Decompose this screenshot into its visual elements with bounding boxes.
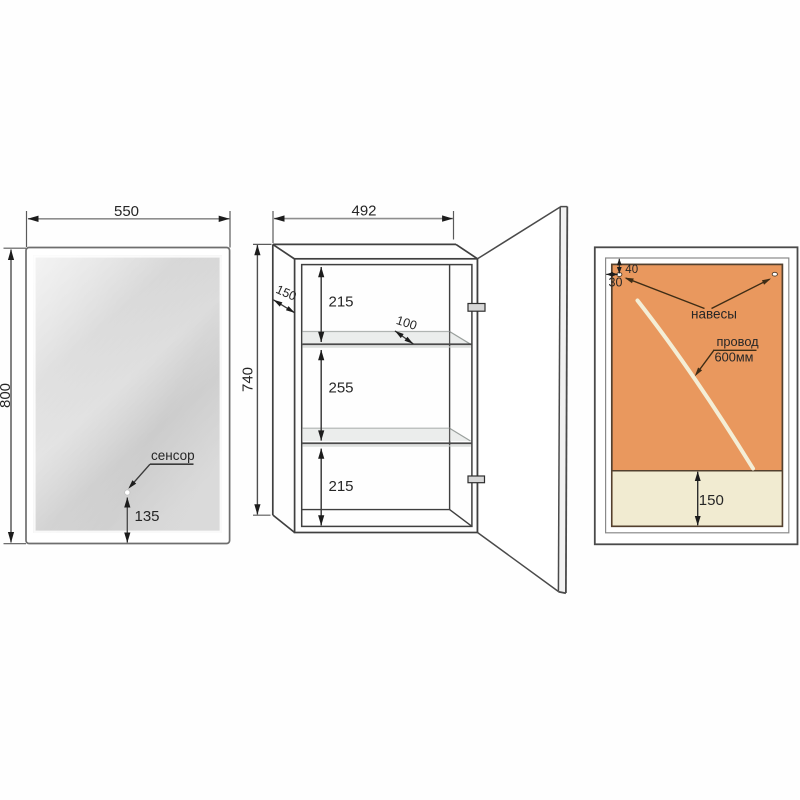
svg-text:215: 215 — [329, 478, 354, 495]
svg-text:600мм: 600мм — [715, 350, 754, 365]
svg-text:492: 492 — [351, 203, 376, 220]
svg-text:800: 800 — [0, 383, 14, 408]
svg-text:740: 740 — [240, 367, 257, 392]
svg-text:40: 40 — [625, 264, 638, 276]
svg-text:255: 255 — [329, 380, 354, 397]
svg-text:сенсор: сенсор — [151, 448, 195, 463]
svg-text:550: 550 — [114, 203, 139, 220]
svg-text:150: 150 — [699, 492, 724, 509]
svg-text:навесы: навесы — [691, 307, 737, 322]
svg-text:30: 30 — [609, 276, 623, 290]
svg-text:провод: провод — [717, 334, 760, 349]
svg-text:215: 215 — [329, 294, 354, 311]
svg-text:135: 135 — [135, 508, 160, 525]
